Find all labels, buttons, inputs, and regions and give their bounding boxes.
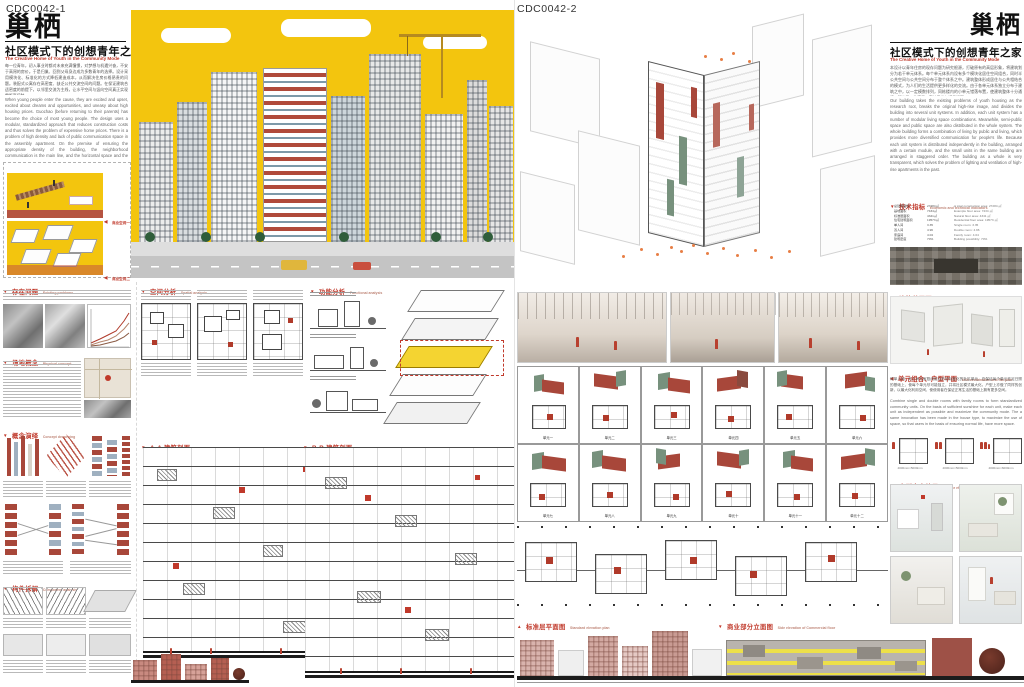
axon-slab <box>407 290 505 312</box>
hatch-room <box>357 591 381 603</box>
figure-red <box>576 337 579 347</box>
fridge <box>931 503 943 531</box>
site-model-photo <box>890 296 1022 364</box>
interior-render-4 <box>959 556 1022 624</box>
elev-building <box>161 654 181 680</box>
road <box>131 256 515 278</box>
stack <box>107 440 117 476</box>
map-road <box>99 359 100 399</box>
exploded-axonometric <box>396 286 515 434</box>
title-rule <box>890 42 1022 43</box>
figure <box>27 202 29 208</box>
people-scatter <box>670 246 673 249</box>
unit-caption: 单元三 <box>642 435 702 440</box>
link-line <box>85 540 117 545</box>
unit-caption: 单元九 <box>642 513 702 518</box>
aerial-site-photo <box>890 247 1022 285</box>
scene2-label: ◀ 商业空间二 <box>104 267 130 285</box>
ind-en-value: 27284 ㎡ <box>989 204 1002 208</box>
plan <box>945 438 974 464</box>
volume <box>314 355 344 369</box>
room <box>226 310 240 320</box>
ceiling-lines <box>671 293 776 315</box>
figure-red <box>857 341 860 350</box>
elev-building <box>558 650 584 676</box>
plan-wing <box>735 556 787 596</box>
board2-intro-cn: 本设计以青年住房的现存问题为研究根源，打破原有的高层形象，将建筑划分为若干单元体… <box>890 65 1022 96</box>
component-photo <box>89 634 131 656</box>
unit-plan <box>715 483 751 507</box>
facade-accent-red <box>749 104 754 131</box>
core <box>786 414 792 420</box>
greek-caption <box>46 481 86 497</box>
facade-accent-red <box>713 102 720 148</box>
figure <box>340 668 342 674</box>
price-trend-chart <box>87 304 131 348</box>
board2-subtitle-en: The Creative Home of Youth in the Commun… <box>890 57 999 62</box>
core <box>728 416 734 422</box>
person-icon <box>980 442 983 449</box>
core <box>673 494 679 500</box>
core <box>547 414 553 420</box>
greek-text-block <box>3 361 81 401</box>
greek-caption <box>253 290 303 301</box>
unit-cell: 单元一 <box>517 366 579 444</box>
person-icon <box>988 444 990 449</box>
unit-axon-green <box>865 448 875 466</box>
person-icon <box>892 442 895 449</box>
concept-diagram-bars <box>3 434 43 478</box>
figure <box>280 648 282 654</box>
ind-en-label: Family room: <box>954 233 972 237</box>
elev-building <box>692 649 722 676</box>
volume <box>326 391 348 411</box>
unit-axon-red <box>668 377 690 393</box>
unit-plan <box>839 483 875 507</box>
tree <box>979 648 1005 674</box>
ind-cv: 70% <box>927 237 954 242</box>
greek-caption <box>310 376 356 380</box>
unit-cell: 单元六 <box>826 366 888 444</box>
ind-en-label: Single room: <box>954 223 971 227</box>
unit-text-en: Combine single and double rooms with fam… <box>890 399 1022 436</box>
bar <box>35 439 39 476</box>
bus <box>281 260 307 270</box>
tree <box>312 399 321 408</box>
concept-scene-panel: ◀ 商业空间一 ◀ 商业空间二 <box>3 162 131 278</box>
board2-title: 巢栖 <box>890 14 1022 38</box>
room <box>264 310 280 324</box>
iso-unit <box>10 229 39 243</box>
greek-caption <box>3 618 43 630</box>
unit-axon-red <box>542 379 564 394</box>
car <box>353 262 371 270</box>
indicator-table: 总建筑面积27284㎡A total construction area: 27… <box>894 204 1022 242</box>
figure-red <box>927 349 929 355</box>
tree <box>370 359 378 367</box>
ind-en: Building possibility: 70% <box>954 237 1022 242</box>
ind-en-value: 7434 ㎡ <box>982 209 993 213</box>
axon-slab <box>383 402 481 424</box>
tree <box>368 317 376 325</box>
board2-intro-en: Our building takes the existing problems… <box>890 98 1022 193</box>
hatch-room <box>425 629 449 641</box>
unit-axon-red <box>602 455 626 471</box>
facade-accent-red <box>656 82 664 140</box>
greek-caption <box>310 292 356 296</box>
greek-caption <box>141 290 191 301</box>
column-divider <box>136 282 137 682</box>
elev-building <box>622 646 648 676</box>
unit-plan-single: 4000mm×5000mm <box>890 438 930 472</box>
building-shape <box>211 72 257 242</box>
floor-plan-diagram <box>197 303 247 360</box>
red-accent <box>921 495 925 499</box>
greek-caption <box>3 561 63 575</box>
interior-render-1 <box>890 484 953 552</box>
axon-slab <box>401 318 499 340</box>
bar <box>21 436 25 476</box>
counter <box>69 196 93 205</box>
unit-axon-green <box>616 370 626 387</box>
greek-caption <box>310 334 356 338</box>
unit-cell: 单元十二 <box>826 444 888 522</box>
tree <box>145 232 155 242</box>
figure-red <box>809 338 812 348</box>
greek-caption <box>89 618 131 630</box>
core <box>288 318 293 323</box>
person-icon <box>935 442 938 449</box>
unit-axon-red <box>791 455 813 471</box>
unit-cell: 单元二 <box>579 366 641 444</box>
core <box>828 555 835 562</box>
greek-caption <box>197 363 247 376</box>
unit-cell: 单元十一 <box>764 444 826 522</box>
core <box>614 567 621 574</box>
ind-cn: 建筑密度 <box>894 237 927 242</box>
volume <box>344 301 360 327</box>
tree <box>339 232 349 242</box>
board1-title: 巢栖 <box>5 14 63 41</box>
unit-plan <box>592 405 628 429</box>
red-accent <box>365 495 371 501</box>
bar <box>7 438 11 476</box>
iso-unit <box>68 239 97 253</box>
section-drawing-aa <box>143 447 329 653</box>
section-block <box>895 661 917 671</box>
unit-plan <box>530 483 566 507</box>
plan-wing <box>665 540 717 580</box>
triangle-left-icon: ◀ <box>104 275 108 280</box>
unit-axon-red2 <box>737 370 748 388</box>
room <box>168 324 184 338</box>
ind-en-value: 19573 ㎡ <box>985 218 998 222</box>
unit-caption: 单元二 <box>580 435 640 440</box>
concept-diagram-stacks <box>89 434 131 478</box>
unit-caption: 单元五 <box>765 435 825 440</box>
building-shape <box>177 102 207 242</box>
section-drawing-bb <box>305 447 515 673</box>
tree <box>483 232 493 242</box>
floor-patch <box>7 265 103 275</box>
core <box>794 494 800 500</box>
board-1: CDC0042-1 巢栖 社区模式下的创想青年之家 The Creative H… <box>0 0 514 687</box>
unit-plan <box>654 483 690 507</box>
model-block <box>999 309 1015 347</box>
corridor-render-2 <box>670 292 775 363</box>
unit-caption: 单元一 <box>518 435 578 440</box>
dim-caption: 4000mm×5000mm <box>935 466 975 470</box>
building-shape <box>489 106 513 242</box>
bar <box>28 444 32 476</box>
function-sketch-1 <box>310 299 386 329</box>
unit-plan <box>715 405 751 429</box>
axon-slab <box>389 374 487 396</box>
link-line <box>85 519 117 527</box>
scene1-label: ◀ 商业空间一 <box>104 211 130 229</box>
tree <box>431 232 441 242</box>
table <box>968 523 998 537</box>
dim-caption: 4000mm×6000mm <box>980 466 1022 470</box>
floor-strip <box>7 210 103 218</box>
elev-building <box>652 631 688 676</box>
commercial-scene-1 <box>7 166 103 218</box>
ind-en-value: 3.35 <box>972 223 978 227</box>
board1-intro-cn: 每一位青年，初入事业时都对未来充满憧憬，对梦想与机遇兴奋，不安于高昂的房价。于是… <box>5 63 128 95</box>
ceiling <box>7 166 103 173</box>
board1-subtitle-en: The Creative Home of Youth in the Commun… <box>5 56 119 61</box>
volume <box>318 309 338 327</box>
greek-caption <box>46 618 86 630</box>
core <box>852 493 858 499</box>
unit-caption: 单元十一 <box>765 513 825 518</box>
ind-en-label: A total construction area: <box>954 204 988 208</box>
ind-en-value: 4.96 <box>973 228 979 232</box>
plan-wing <box>805 542 857 582</box>
section-header-functional-analysis: ▼ 功能分析 Functional analysis <box>310 281 382 299</box>
unit-cell: 单元四 <box>702 366 764 444</box>
ground-thin-line <box>517 682 1024 683</box>
unit-cell: 单元八 <box>579 444 641 522</box>
stack-link-diagram-1 <box>3 502 63 558</box>
room <box>262 334 282 350</box>
bed <box>917 587 945 605</box>
subject-face-left <box>648 61 704 247</box>
building-shape <box>369 54 421 242</box>
stack-col <box>72 504 84 556</box>
figure-red <box>983 351 985 357</box>
facade-accent-red <box>691 87 697 118</box>
core <box>690 557 697 564</box>
unit-axon-green <box>777 370 787 387</box>
hatch-room <box>213 507 235 519</box>
unit-caption: 单元七 <box>518 513 578 518</box>
greek-caption <box>89 660 131 674</box>
section-block <box>797 657 823 669</box>
hero-city-illustration <box>131 10 515 278</box>
component-diagram <box>46 587 86 615</box>
cloud <box>281 19 371 37</box>
unit-caption: 单元十二 <box>827 513 887 518</box>
grid-ticks-bottom <box>517 604 888 606</box>
elev-building <box>211 658 229 680</box>
volume <box>352 399 378 411</box>
model-block <box>971 313 993 346</box>
axonometric-building-drawing <box>520 10 888 288</box>
figure <box>53 180 55 186</box>
unit-plan-family: 4000mm×6000mm <box>980 438 1022 472</box>
board1-intro-en: When young people enter the cause, they … <box>5 97 128 159</box>
section-title-en: Concept deepening <box>43 435 75 439</box>
axon-highlight-box <box>400 340 504 376</box>
unit-axon-green <box>739 449 749 466</box>
stack <box>92 436 102 476</box>
unit-plan <box>532 405 566 429</box>
ind-en-label: Natural floor area: <box>954 214 979 218</box>
core <box>546 557 553 564</box>
core <box>671 412 677 418</box>
unit-axon-red <box>542 455 566 471</box>
bar <box>14 442 18 476</box>
greek-text-block <box>3 404 81 418</box>
unit-caption: 单元六 <box>827 435 887 440</box>
unit-axon-red <box>841 453 867 470</box>
elev-building <box>133 660 157 680</box>
building-shape <box>139 122 173 242</box>
ind-en-label: Double room: <box>954 228 973 232</box>
hatch-room <box>455 553 477 565</box>
hatch-room <box>263 545 283 557</box>
building-shape <box>331 96 365 242</box>
model-block <box>901 309 925 342</box>
red-accent <box>405 607 411 613</box>
plan <box>899 438 928 464</box>
scene1-label-text: 商业空间一 <box>112 221 130 225</box>
unit-caption: 单元八 <box>580 513 640 518</box>
commercial-section <box>726 640 926 676</box>
building-shape <box>467 80 487 242</box>
sofa <box>994 591 1016 605</box>
crane-jib <box>399 34 481 37</box>
elev-building <box>588 636 618 676</box>
context-building <box>812 25 872 158</box>
crane-mast <box>441 36 443 98</box>
tree <box>233 668 245 680</box>
tree <box>201 232 211 242</box>
unit-axon-green <box>865 376 875 392</box>
unit-plan <box>839 405 875 429</box>
facade-accent-green <box>679 136 687 186</box>
poster-pair: CDC0042-1 巢栖 社区模式下的创想青年之家 The Creative H… <box>0 0 1024 687</box>
photo-highrise <box>45 304 85 348</box>
ceiling-lines <box>779 293 889 317</box>
interior-render-3 <box>890 556 953 624</box>
hatch-room <box>325 477 347 489</box>
board-2: CDC0042-2 <box>515 0 1024 687</box>
facade-accent-green <box>667 179 674 217</box>
greek-caption <box>197 290 247 301</box>
ind-en-label: Residential floor area: <box>954 218 984 222</box>
unit-cell: 单元五 <box>764 366 826 444</box>
hatch-room <box>157 469 177 481</box>
greek-caption <box>253 363 303 376</box>
plant <box>901 571 911 581</box>
tree <box>255 232 265 242</box>
unit-axon-green <box>656 448 666 465</box>
site-marker <box>105 375 111 381</box>
plan <box>993 438 1022 464</box>
hatch-room <box>283 621 307 633</box>
person-icon <box>984 442 987 449</box>
red-accent <box>239 487 245 493</box>
greek-caption <box>141 363 191 376</box>
ind-en-label: Building possibility: <box>954 237 980 241</box>
stack-col <box>117 504 129 556</box>
dim-caption: 4000mm×5000mm <box>890 466 930 470</box>
greek-caption <box>89 481 131 497</box>
unit-cell: 单元九 <box>641 444 703 522</box>
floor-plan-diagram <box>253 303 303 360</box>
ind-en-value: 4.04 <box>973 233 979 237</box>
hatch-room <box>183 583 205 595</box>
greek-caption <box>3 660 43 674</box>
hatch-room <box>395 515 417 527</box>
unit-axon-red <box>717 451 741 468</box>
greek-caption <box>70 561 131 575</box>
core <box>603 415 609 421</box>
unit-cell: 单元七 <box>517 444 579 522</box>
unit-type-grid: 单元一 单元二 单元三 单元四 <box>517 366 888 522</box>
commercial-scene-2 <box>7 221 103 275</box>
ground-strip <box>131 242 515 256</box>
grid-ticks-top <box>517 526 888 528</box>
site-building-cluster <box>934 259 978 273</box>
elev-building <box>185 664 207 680</box>
link-line <box>85 528 116 537</box>
standard-floor-plan <box>517 524 888 610</box>
chart-lines <box>88 305 132 349</box>
iso-unit <box>42 225 73 240</box>
ind-en-label: Example floor area: <box>954 209 981 213</box>
room <box>204 316 222 332</box>
unit-cell: 单元十 <box>702 444 764 522</box>
subject-face-right <box>704 61 760 247</box>
unit-plan <box>777 405 813 429</box>
plan-wing <box>525 542 577 582</box>
component-photo <box>46 634 86 656</box>
photo-site <box>84 400 131 418</box>
component-diagram <box>3 587 43 615</box>
people-scatter-roof <box>720 58 723 61</box>
window <box>968 567 986 601</box>
greek-text-block <box>3 290 131 301</box>
context-building <box>520 171 575 265</box>
corridor-render-3 <box>778 292 888 363</box>
context-building <box>820 155 875 257</box>
stack-col <box>5 504 17 556</box>
ground-line-bb <box>305 675 515 678</box>
red-accent <box>173 563 179 569</box>
section-block <box>743 645 765 657</box>
unit-plan <box>654 405 690 429</box>
cloud <box>161 28 231 43</box>
component-slab <box>83 590 137 612</box>
iso-unit <box>20 249 51 264</box>
unit-caption: 单元十 <box>703 513 763 518</box>
unit-plan <box>777 483 813 507</box>
unit-cell: 单元三 <box>641 366 703 444</box>
triangle-left-icon: ◀ <box>104 219 108 224</box>
